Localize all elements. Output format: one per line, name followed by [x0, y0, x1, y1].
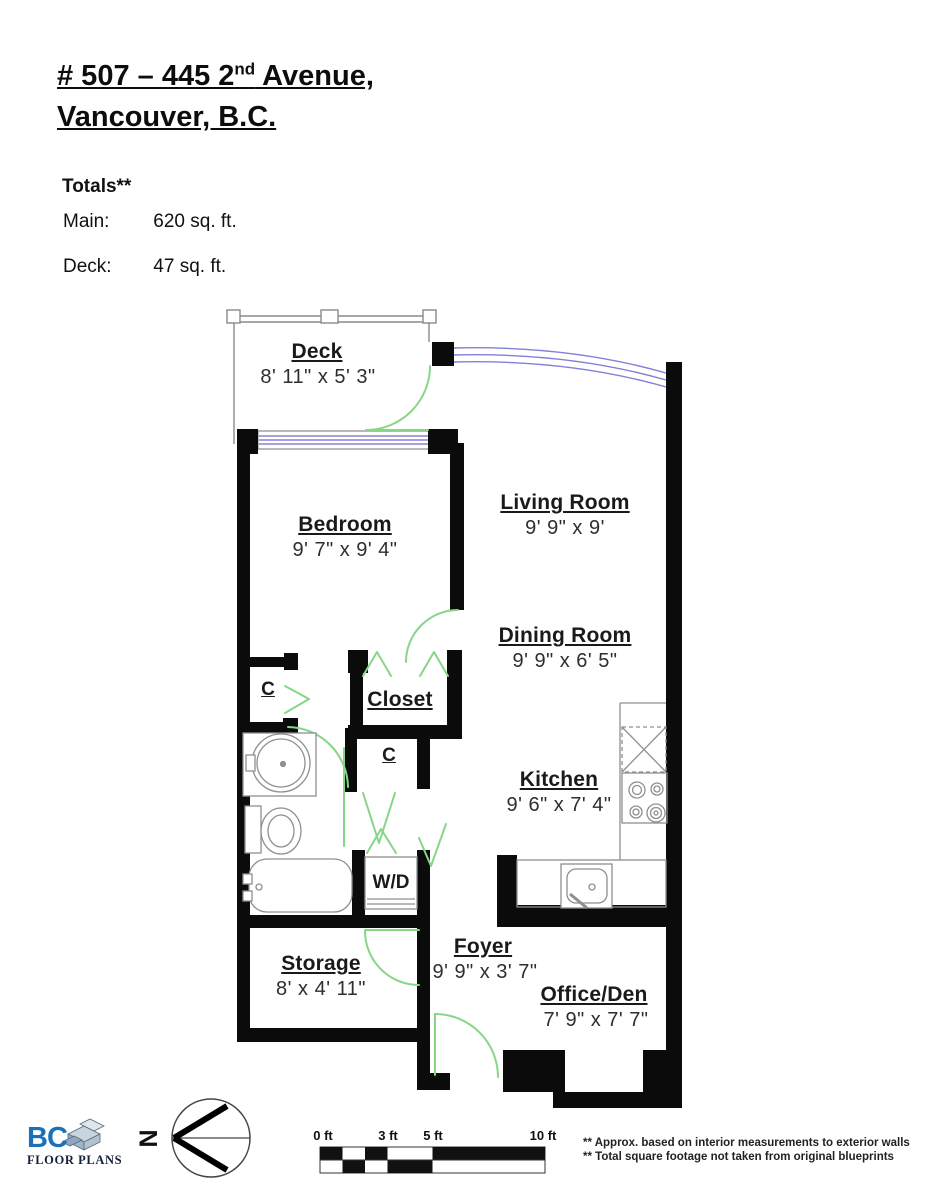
scale-tick-label: 10 ft — [530, 1128, 557, 1143]
totals-heading: Totals** — [62, 176, 131, 198]
room-dims: 9' 6" x 7' 4" — [506, 794, 611, 817]
bathtub — [243, 859, 352, 912]
total-row-main: Main: 620 sq. ft. — [63, 211, 237, 233]
footnote-line: ** Approx. based on interior measurement… — [583, 1136, 910, 1150]
room-label: Office/Den — [540, 983, 647, 1007]
closet-c-label: C — [382, 745, 396, 767]
footnotes: ** Approx. based on interior measurement… — [583, 1136, 910, 1164]
scale-bar — [320, 1147, 545, 1173]
toilet — [245, 806, 301, 854]
room-dims: 9' 9" x 3' 7" — [432, 961, 537, 984]
room-label: Kitchen — [520, 768, 598, 792]
room-label: Living Room — [500, 491, 629, 515]
stove — [622, 773, 667, 823]
logo-subtitle-text: FLOOR PLANS — [27, 1153, 122, 1168]
room-label: Dining Room — [499, 624, 632, 648]
floor-plan-drawing — [0, 0, 927, 1200]
total-label: Deck: — [63, 256, 148, 278]
closet-c1-bifold-door — [285, 686, 309, 713]
room-dims: 8' 11" x 5' 3" — [260, 366, 375, 389]
total-value: 620 sq. ft. — [153, 211, 236, 232]
total-label: Main: — [63, 211, 148, 233]
compass-icon — [172, 1099, 250, 1177]
scale-tick-label: 5 ft — [423, 1128, 443, 1143]
title-line-1: # 507 – 445 2nd Avenue, — [57, 56, 374, 97]
scale-tick-label: 3 ft — [378, 1128, 398, 1143]
logo-isometric-plan-icon — [62, 1119, 104, 1150]
room-label: Closet — [367, 688, 432, 712]
fridge — [622, 727, 666, 772]
footnote-line: ** Total square footage not taken from o… — [583, 1150, 910, 1164]
room-dims: 7' 9" x 7' 7" — [543, 1009, 648, 1032]
kitchen-sink — [561, 864, 612, 908]
entry-door-arc — [435, 1014, 498, 1077]
north-label: N — [133, 1129, 162, 1147]
total-row-deck: Deck: 47 sq. ft. — [63, 256, 226, 278]
room-label: Bedroom — [298, 513, 392, 537]
closet-bifold-door — [420, 652, 448, 676]
title-line-2: Vancouver, B.C. — [57, 97, 374, 138]
page-title: # 507 – 445 2nd Avenue, Vancouver, B.C. — [57, 56, 374, 138]
room-dims: 9' 7" x 9' 4" — [292, 539, 397, 562]
washer-dryer-label: W/D — [373, 872, 410, 894]
room-dims: 9' 9" x 6' 5" — [512, 650, 617, 673]
storage-door-arc — [365, 930, 419, 985]
floor-plan-page: # 507 – 445 2nd Avenue, Vancouver, B.C. … — [0, 0, 927, 1200]
bathroom-vanity — [243, 733, 316, 796]
room-label: Storage — [281, 952, 361, 976]
logo-brand-text: BC — [27, 1122, 67, 1155]
closet-c2-bifold-door — [363, 793, 395, 843]
room-label: Foyer — [454, 935, 512, 959]
scale-tick-label: 0 ft — [313, 1128, 333, 1143]
total-value: 47 sq. ft. — [153, 256, 226, 277]
room-dims: 8' x 4' 11" — [276, 978, 366, 1001]
room-label: Deck — [291, 340, 342, 364]
room-dims: 9' 9" x 9' — [525, 517, 605, 540]
curved-window — [452, 348, 666, 373]
closet-c-label: C — [261, 679, 275, 701]
